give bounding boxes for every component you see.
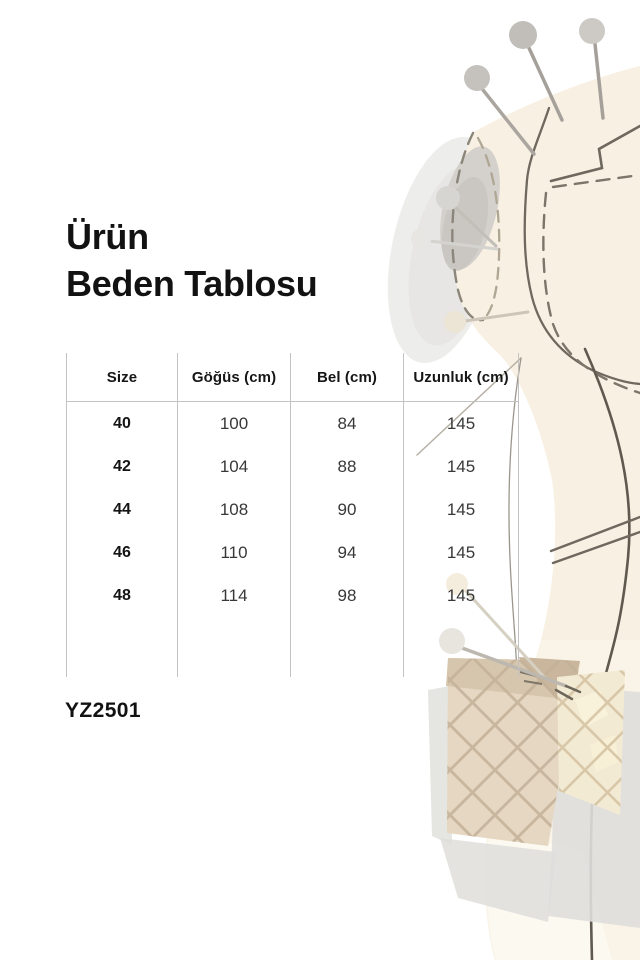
- chest-cell: 114: [178, 574, 291, 617]
- page-title: Ürün Beden Tablosu: [66, 213, 317, 307]
- size-cell: 42: [66, 445, 178, 488]
- waist-cell: 94: [291, 531, 404, 574]
- length-cell: 145: [404, 445, 519, 488]
- size-cell: 44: [66, 488, 178, 531]
- waist-cell: 98: [291, 574, 404, 617]
- table-spacer-row: [66, 617, 519, 677]
- table-header-row: Size Göğüs (cm) Bel (cm) Uzunluk (cm): [66, 353, 519, 402]
- table-row: 48 114 98 145: [66, 574, 519, 617]
- header-cell-waist: Bel (cm): [291, 353, 404, 402]
- waist-cell: 84: [291, 402, 404, 445]
- chest-cell: 110: [178, 531, 291, 574]
- size-cell: 46: [66, 531, 178, 574]
- size-cell: 48: [66, 574, 178, 617]
- length-cell: 145: [404, 488, 519, 531]
- header-cell-chest: Göğüs (cm): [178, 353, 291, 402]
- page-title-line1: Ürün: [66, 213, 317, 260]
- header-cell-size: Size: [66, 353, 178, 402]
- length-cell: 145: [404, 402, 519, 445]
- content: Ürün Beden Tablosu Size Göğüs (cm) Bel (…: [0, 0, 640, 960]
- size-cell: 40: [66, 402, 178, 445]
- size-table: Size Göğüs (cm) Bel (cm) Uzunluk (cm) 40…: [66, 353, 519, 677]
- chest-cell: 100: [178, 402, 291, 445]
- waist-cell: 90: [291, 488, 404, 531]
- table-row: 46 110 94 145: [66, 531, 519, 574]
- table-row: 44 108 90 145: [66, 488, 519, 531]
- chest-cell: 104: [178, 445, 291, 488]
- table-row: 42 104 88 145: [66, 445, 519, 488]
- table-row: 40 100 84 145: [66, 402, 519, 445]
- header-cell-length: Uzunluk (cm): [404, 353, 519, 402]
- waist-cell: 88: [291, 445, 404, 488]
- length-cell: 145: [404, 531, 519, 574]
- product-code: YZ2501: [65, 699, 141, 723]
- length-cell: 145: [404, 574, 519, 617]
- page-title-line2: Beden Tablosu: [66, 260, 317, 307]
- page: Ürün Beden Tablosu Size Göğüs (cm) Bel (…: [0, 0, 640, 960]
- chest-cell: 108: [178, 488, 291, 531]
